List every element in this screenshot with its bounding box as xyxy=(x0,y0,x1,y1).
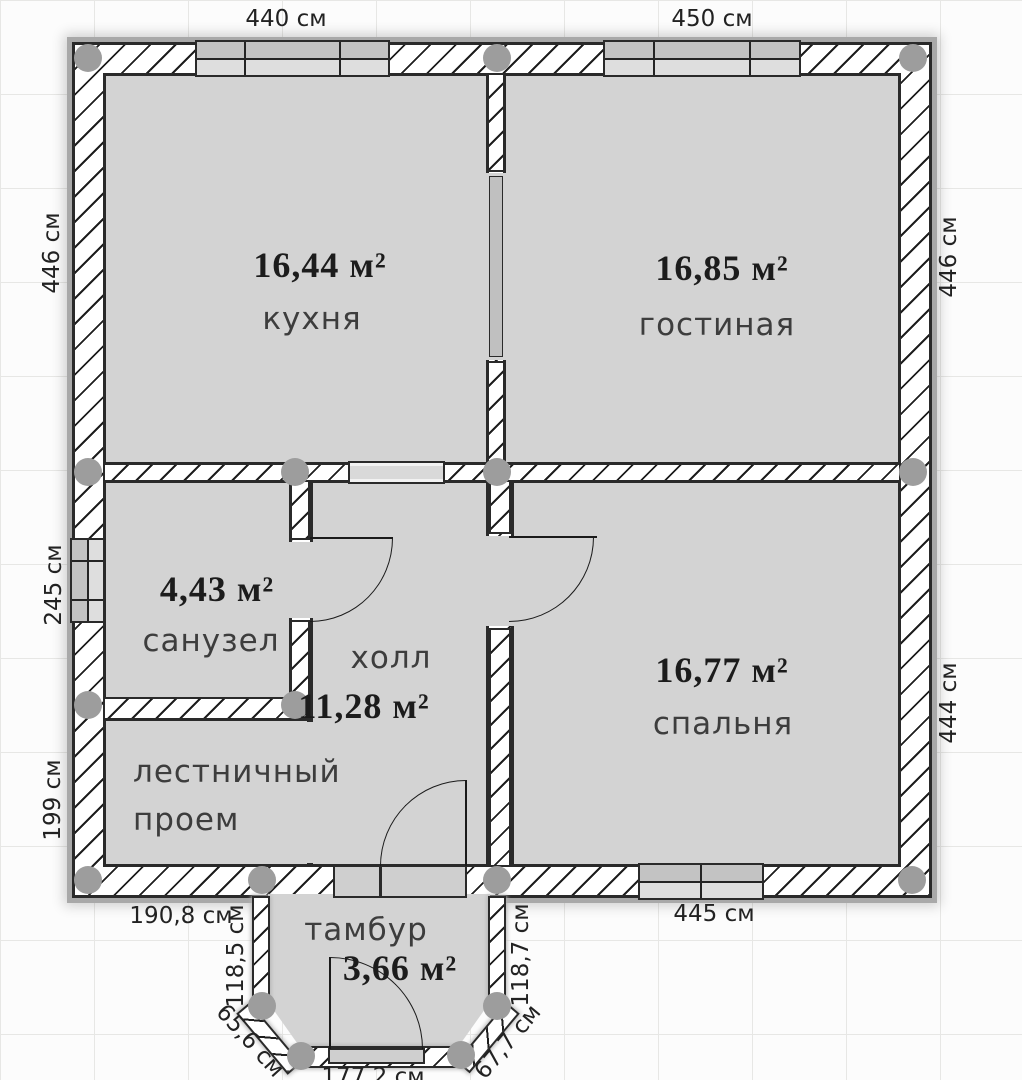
corner-marker xyxy=(483,866,511,894)
dim-right-living: 446 см xyxy=(936,216,962,297)
corner-marker xyxy=(74,458,102,486)
dim-vestibule-right: 118,7 см xyxy=(508,903,534,1006)
vestibule-door-threshold xyxy=(328,1048,425,1064)
wall-bathroom-south xyxy=(103,697,310,720)
window-bathroom-left xyxy=(70,538,105,623)
dim-bottom-bedroom: 445 см xyxy=(673,901,754,927)
corner-marker xyxy=(74,44,102,72)
wall-bedroom-west-lower xyxy=(489,628,511,867)
dim-top-living: 450 см xyxy=(671,6,752,32)
dim-vestibule-bottom: 177,2 см xyxy=(321,1064,424,1080)
corner-marker xyxy=(248,866,276,894)
wall-bedroom-west-upper xyxy=(489,480,511,534)
wall-bathroom-east-upper xyxy=(290,480,310,540)
stairwell-name-label: лестничный проем xyxy=(133,748,343,844)
living-name-label: гостиная xyxy=(639,307,795,343)
dim-bottom-stairwell: 190,8 см xyxy=(129,903,232,929)
window-bedroom-bottom xyxy=(638,863,764,900)
corner-marker xyxy=(483,992,511,1020)
dim-top-kitchen: 440 см xyxy=(245,6,326,32)
dim-left-stairwell: 199 см xyxy=(40,759,66,840)
corner-marker xyxy=(74,691,102,719)
dim-right-bedroom: 444 см xyxy=(936,662,962,743)
corner-marker xyxy=(248,992,276,1020)
kitchen-name-label: кухня xyxy=(262,301,361,337)
bedroom-name-label: спальня xyxy=(653,706,793,742)
window-living-top xyxy=(603,40,801,77)
vestibule-area-label: 3,66 м² xyxy=(343,947,457,989)
kitchen-area-label: 16,44 м² xyxy=(253,244,386,286)
corner-marker xyxy=(483,44,511,72)
hall-area-label: 11,28 м² xyxy=(298,685,429,727)
wall-kitchen-living-lower xyxy=(487,361,505,465)
living-area-label: 16,85 м² xyxy=(655,247,788,289)
corner-marker xyxy=(899,458,927,486)
corner-marker xyxy=(898,866,926,894)
dim-vestibule-left: 118,5 см xyxy=(223,904,249,1007)
bedroom-area-label: 16,77 м² xyxy=(655,649,788,691)
kitchen-living-opening-panel xyxy=(489,176,503,357)
entrance-door-threshold xyxy=(333,865,467,898)
dim-left-kitchen: 446 см xyxy=(39,212,65,293)
window-kitchen-hall-interior xyxy=(348,461,445,484)
wall-kitchen-living-upper xyxy=(487,73,505,172)
window-kitchen-top xyxy=(195,40,390,77)
bathroom-area-label: 4,43 м² xyxy=(160,568,274,610)
hall-name-label: холл xyxy=(351,640,432,676)
corner-marker xyxy=(74,866,102,894)
corner-marker xyxy=(287,1042,315,1070)
bathroom-name-label: санузел xyxy=(142,623,279,659)
dim-left-bathroom: 245 см xyxy=(41,544,67,625)
corner-marker xyxy=(483,458,511,486)
vestibule-name-label: тамбур xyxy=(304,912,428,948)
corner-marker xyxy=(899,44,927,72)
corner-marker xyxy=(281,458,309,486)
floor-plan: 16,44 м² кухня 16,85 м² гостиная 4,43 м²… xyxy=(0,0,1022,1080)
